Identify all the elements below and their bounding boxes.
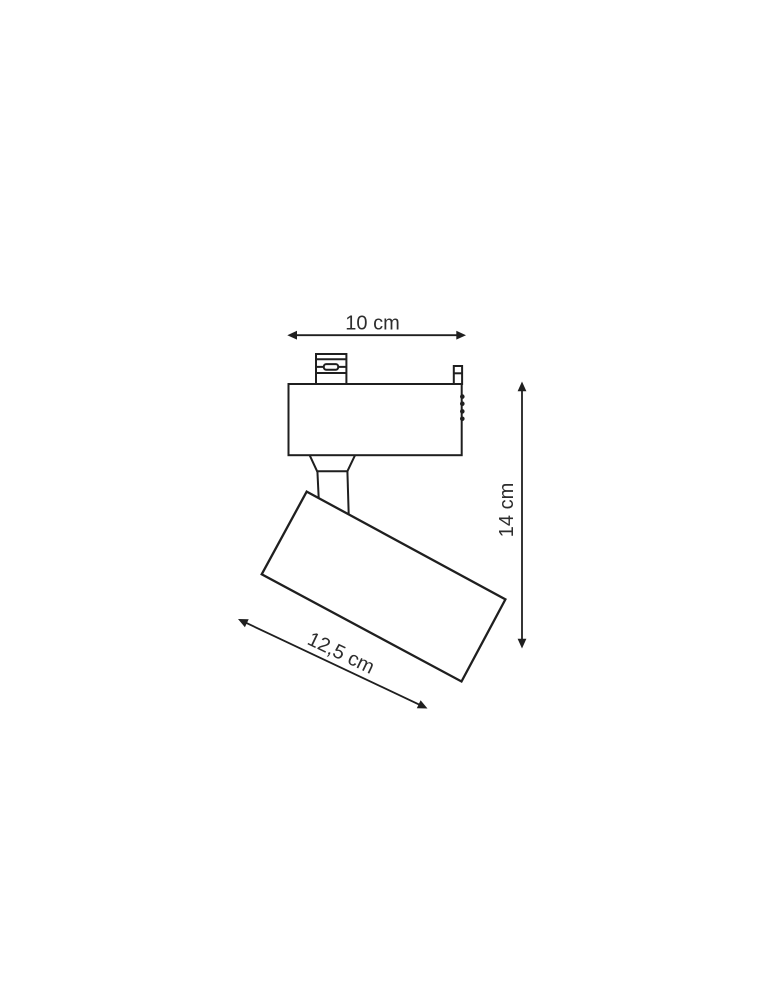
- svg-text:10 cm: 10 cm: [345, 313, 399, 335]
- svg-text:14 cm: 14 cm: [496, 483, 518, 537]
